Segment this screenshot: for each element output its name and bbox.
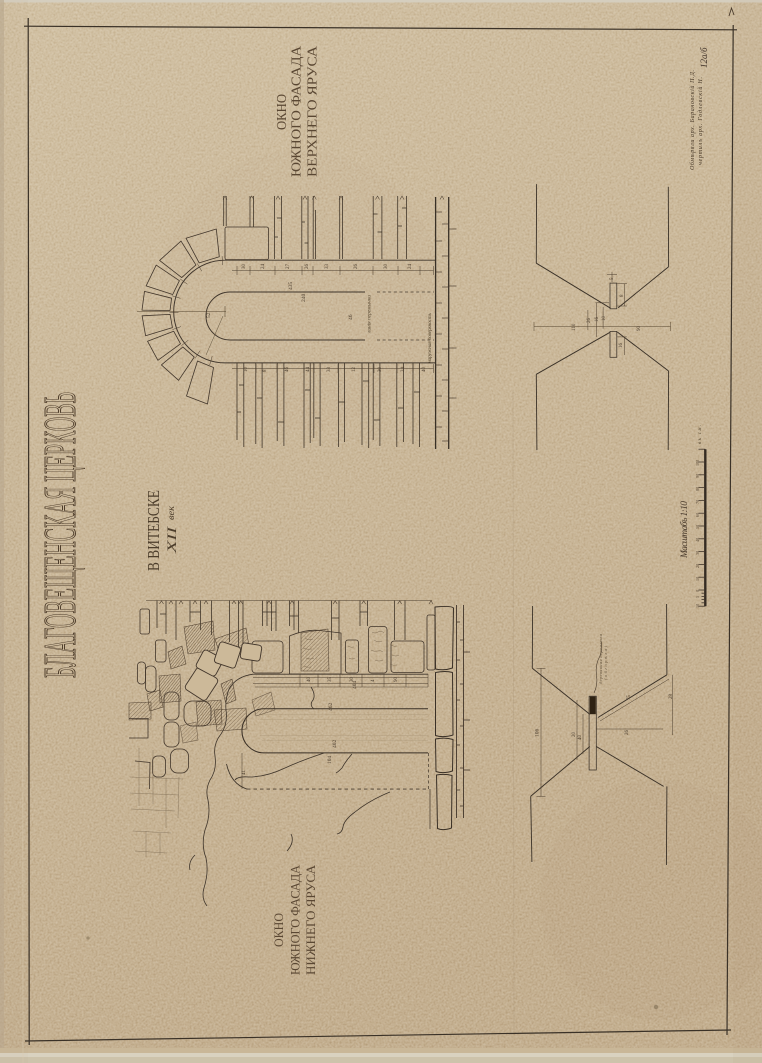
svg-text:век: век [166, 505, 176, 520]
svg-text:XII: XII [164, 526, 179, 555]
svg-text:27: 27 [286, 264, 291, 270]
svg-text:100: 100 [695, 460, 700, 466]
svg-text:30: 30 [695, 551, 700, 555]
svg-text:435: 435 [288, 282, 294, 291]
svg-text:24: 24 [401, 367, 406, 373]
svg-text:12: 12 [352, 367, 357, 373]
svg-text:26: 26 [354, 264, 359, 270]
svg-text:10: 10 [602, 316, 607, 322]
svg-text:40: 40 [695, 538, 700, 542]
svg-text:26: 26 [587, 318, 592, 324]
svg-text:90: 90 [695, 474, 700, 478]
svg-text:24: 24 [261, 264, 266, 270]
svg-text:110: 110 [572, 323, 577, 331]
svg-text:462: 462 [328, 703, 334, 712]
svg-text:0: 0 [695, 590, 700, 592]
svg-text:104: 104 [327, 756, 333, 765]
svg-text:33: 33 [325, 264, 330, 270]
svg-text:БЛАГОВЕЩЕНСКАЯ ЦЕРКОВЬ: БЛАГОВЕЩЕНСКАЯ ЦЕРКОВЬ [34, 392, 85, 678]
svg-text:52: 52 [206, 312, 212, 318]
svg-text:28: 28 [669, 694, 674, 700]
svg-text:402: 402 [332, 740, 338, 749]
svg-text:50: 50 [695, 525, 700, 529]
svg-text:106: 106 [535, 729, 541, 738]
svg-text:16: 16 [619, 343, 624, 349]
svg-text:90: 90 [637, 326, 642, 332]
svg-text:чертилъ арх. Годлевскій Н.: чертилъ арх. Годлевскій Н. [697, 77, 704, 165]
svg-text:70: 70 [695, 500, 700, 504]
svg-text:линія перемычки: линія перемычки [367, 295, 373, 334]
svg-text:5: 5 [695, 596, 700, 598]
svg-text:ОКНО: ОКНО [274, 94, 289, 130]
svg-text:90: 90 [394, 677, 399, 683]
svg-text:ЮЖНОГО ФАСАДА: ЮЖНОГО ФАСАДА [288, 864, 303, 975]
svg-text:240: 240 [301, 294, 307, 303]
svg-text:10: 10 [244, 367, 249, 373]
svg-text:ОКНО: ОКНО [271, 913, 286, 947]
svg-text:33: 33 [327, 367, 332, 373]
svg-text:В ВИТЕБСКЕ: В ВИТЕБСКЕ [144, 490, 163, 571]
svg-text:40: 40 [307, 677, 312, 683]
svg-text:30: 30 [378, 367, 383, 373]
svg-text:404: 404 [352, 681, 358, 690]
svg-text:40: 40 [422, 367, 427, 373]
svg-text:НИЖНЕГО ЯРУСА: НИЖНЕГО ЯРУСА [303, 864, 318, 975]
svg-text:80: 80 [695, 487, 700, 491]
svg-text:Масштабъ 1:10: Масштабъ 1:10 [679, 501, 690, 559]
svg-text:44: 44 [306, 367, 311, 373]
svg-text:26: 26 [305, 264, 310, 270]
svg-text:12а/б: 12а/б [699, 47, 709, 68]
svg-text:10: 10 [695, 604, 700, 608]
svg-text:10: 10 [695, 577, 700, 581]
svg-text:35: 35 [328, 677, 333, 683]
svg-text:Обмѣряли арх. Барановскій П.Д.: Обмѣряли арх. Барановскій П.Д. [689, 70, 696, 170]
svg-text:30: 30 [242, 264, 247, 270]
svg-text:20: 20 [695, 564, 700, 568]
svg-text:60: 60 [695, 513, 700, 517]
svg-text:40: 40 [578, 735, 583, 741]
svg-text:30: 30 [384, 264, 389, 270]
svg-text:24: 24 [408, 264, 413, 270]
svg-text:46: 46 [285, 367, 290, 373]
svg-text:75: 75 [627, 695, 632, 701]
svg-text:въ см.: въ см. [698, 425, 703, 444]
svg-text:16: 16 [595, 317, 600, 323]
svg-text:20: 20 [572, 732, 577, 738]
svg-text:41: 41 [242, 770, 247, 776]
svg-text:26: 26 [625, 730, 630, 736]
svg-text:ЮЖНОГО ФАСАДА: ЮЖНОГО ФАСАДА [289, 46, 304, 177]
svg-text:наружная поверхность: наружная поверхность [427, 313, 433, 363]
svg-text:46: 46 [348, 314, 354, 320]
svg-text:ВЕРХНЕГО ЯРУСА: ВЕРХНЕГО ЯРУСА [305, 46, 320, 177]
